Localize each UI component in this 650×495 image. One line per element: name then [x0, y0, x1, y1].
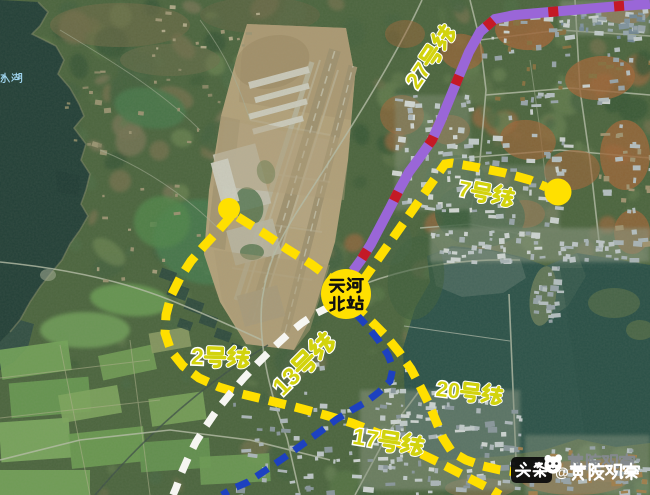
svg-text:2: 2 [191, 343, 205, 369]
svg-text:@: @ [555, 464, 569, 480]
